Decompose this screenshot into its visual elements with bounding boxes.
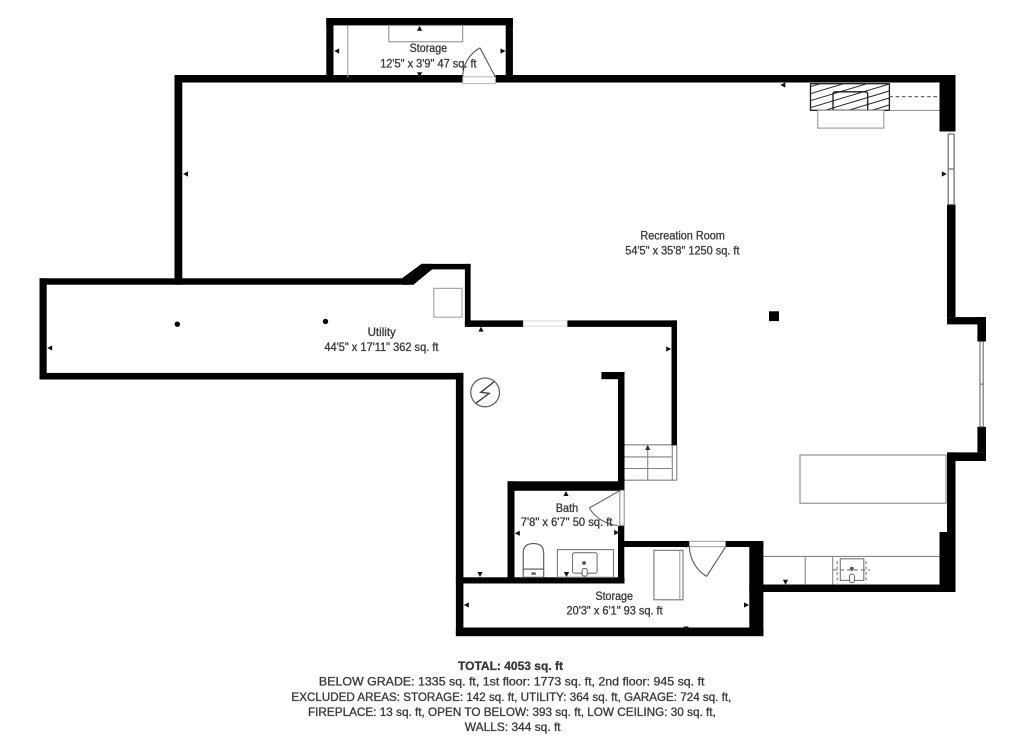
svg-text:EXCLUDED AREAS: STORAGE: 142 s: EXCLUDED AREAS: STORAGE: 142 sq. ft, UTI…: [291, 691, 731, 704]
svg-text:44'5" x 17'11" 362 sq. ft: 44'5" x 17'11" 362 sq. ft: [324, 341, 439, 354]
svg-text:BELOW GRADE: 1335 sq. ft, 1st: BELOW GRADE: 1335 sq. ft, 1st floor: 177…: [319, 675, 705, 688]
svg-text:12'5" x 3'9" 47 sq. ft: 12'5" x 3'9" 47 sq. ft: [380, 58, 477, 71]
svg-text:Utility: Utility: [368, 326, 396, 339]
svg-text:Storage: Storage: [595, 590, 633, 603]
svg-text:FIREPLACE: 13 sq. ft, OPEN TO: FIREPLACE: 13 sq. ft, OPEN TO BELOW: 393…: [308, 706, 716, 719]
svg-text:54'5" x 35'8" 1250 sq. ft: 54'5" x 35'8" 1250 sq. ft: [625, 243, 740, 257]
svg-text:Storage: Storage: [410, 42, 448, 55]
svg-text:WALLS: 344 sq. ft: WALLS: 344 sq. ft: [465, 721, 562, 734]
svg-text:7'8" x 6'7" 50 sq. ft: 7'8" x 6'7" 50 sq. ft: [521, 516, 613, 529]
svg-text:Recreation Room: Recreation Room: [640, 228, 725, 242]
svg-text:TOTAL: 4053 sq. ft: TOTAL: 4053 sq. ft: [458, 659, 563, 673]
svg-text:20'3" x 6'1" 93 sq. ft: 20'3" x 6'1" 93 sq. ft: [567, 605, 664, 618]
svg-text:Bath: Bath: [556, 502, 578, 515]
